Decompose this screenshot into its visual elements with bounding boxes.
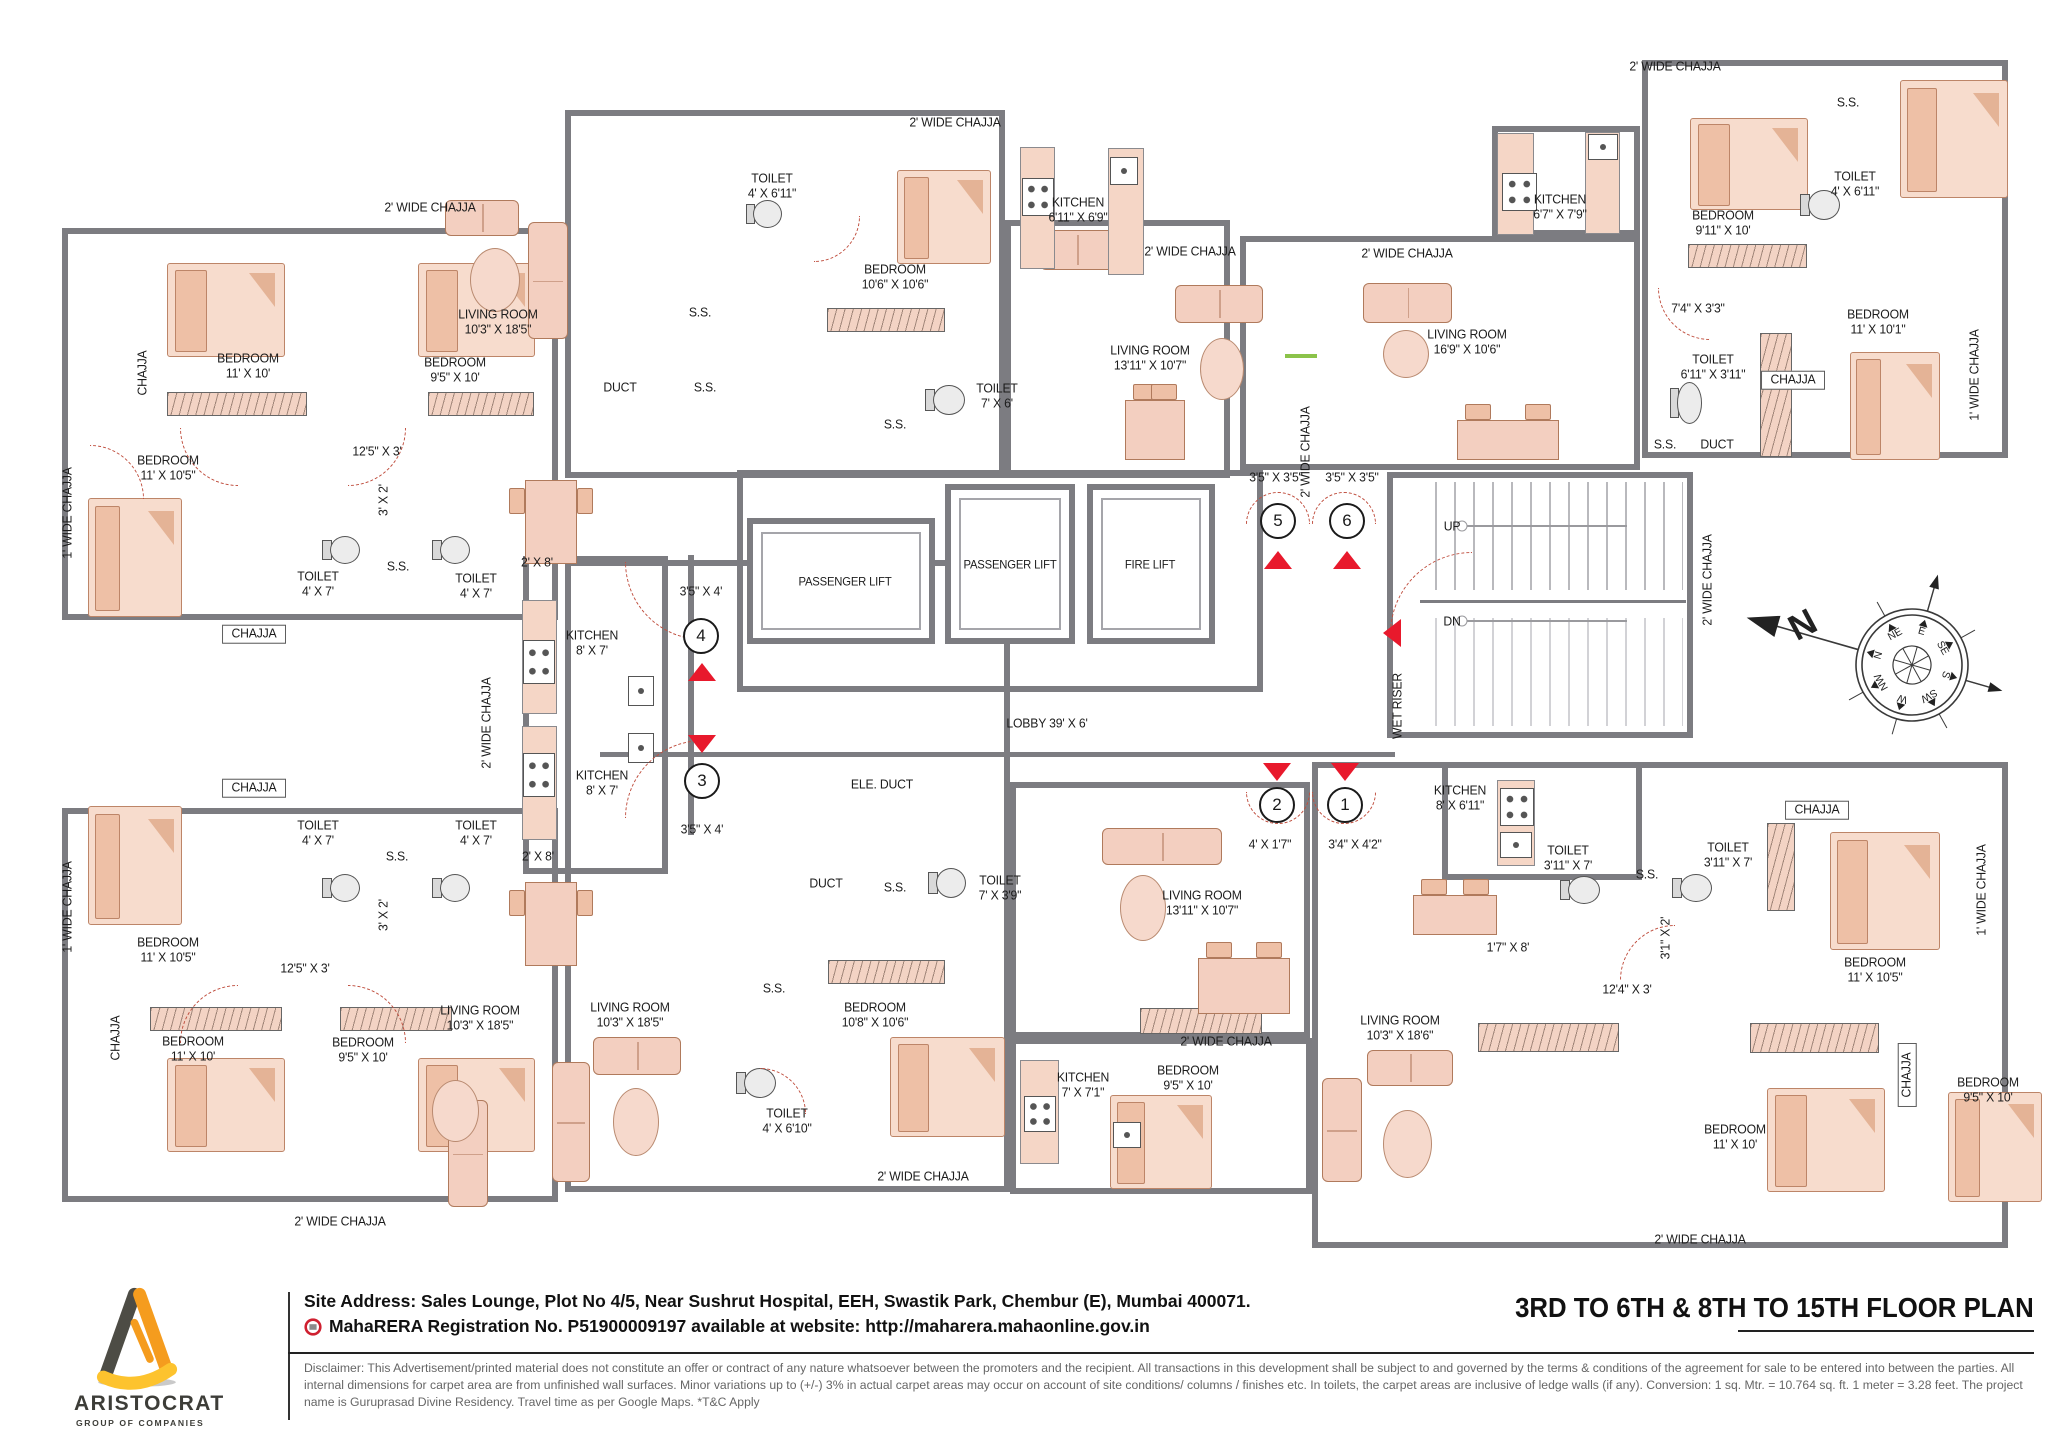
label-dimensions: 11' X 10'5" (137, 950, 199, 965)
label-text: S.S. (763, 981, 785, 996)
bed-symbol (88, 498, 182, 617)
label-text: 2' WIDE CHAJJA (877, 1169, 968, 1184)
label-dimensions: 9'5" X 10' (424, 370, 486, 385)
room-label: BEDROOM11' X 10'5" (1844, 955, 1906, 984)
dimension-label: LOBBY 39' X 6' (1006, 717, 1087, 732)
table-oval-symbol (470, 248, 520, 312)
room-label: BEDROOM11' X 10' (162, 1034, 224, 1063)
label-text: S.S. (689, 305, 711, 320)
label-text: 3'5" X 3'5" (1249, 470, 1302, 485)
svg-text:NE: NE (1886, 626, 1905, 644)
room-label: LIVING ROOM13'11" X 10'7" (1110, 343, 1189, 372)
wardrobe-symbol (1478, 1023, 1619, 1052)
label-text: LIVING ROOM (1360, 1012, 1439, 1027)
bed-symbol (1830, 832, 1940, 950)
label-dimensions: 10'3" X 18'5" (440, 1018, 519, 1033)
stair-run-line (1462, 620, 1627, 622)
label-text: 3'5" X 4' (681, 822, 724, 837)
chair-symbol (1525, 404, 1551, 420)
dimension-label: 2' X 8' (522, 850, 554, 865)
table-oval-symbol (613, 1088, 659, 1156)
label-text: DUCT (1700, 437, 1733, 452)
maharera-icon (304, 1318, 322, 1336)
toilet-wc-symbol (322, 536, 358, 562)
dimension-label: ELE. DUCT (851, 778, 913, 793)
stove-symbol (523, 753, 555, 797)
label-dimensions: 3'11" X 7' (1704, 855, 1752, 870)
label-text: 2' WIDE CHAJJA (479, 677, 494, 768)
label-text: TOILET (976, 380, 1017, 395)
stair-run-line (1462, 525, 1627, 527)
label-text: CHAJJA (231, 780, 276, 795)
stair-treads (1435, 482, 1683, 590)
label-dimensions: 6'11" X 3'11" (1681, 367, 1746, 382)
sofa-seam (1077, 235, 1079, 265)
sink-symbol (1500, 832, 1532, 858)
bed-symbol (167, 1058, 285, 1152)
label-text: 2' WIDE CHAJJA (294, 1214, 385, 1229)
toilet-wc-symbol (925, 385, 963, 413)
label-dimensions: 9'5" X 10' (1957, 1090, 2019, 1105)
toilet-wc-symbol (1560, 876, 1598, 902)
label-text: 1'7" X 8' (1487, 940, 1530, 955)
floor-plan-page: 2' WIDE CHAJJABEDROOM11' X 10'BEDROOM9'5… (0, 0, 2048, 1448)
stove-symbol (523, 640, 555, 684)
wall-segment (1442, 762, 1642, 880)
svg-text:SW: SW (1919, 686, 1940, 705)
label-dimensions: 8' X 7' (566, 643, 618, 658)
sofa-seam (637, 1042, 639, 1071)
page-title: 3RD TO 6TH & 8TH TO 15TH FLOOR PLAN (1515, 1292, 2034, 1324)
label-dimensions: 10'3" X 18'5" (590, 1015, 669, 1030)
dimension-label: 3'5" X 3'5" (1249, 471, 1302, 486)
room-label: TOILET4' X 6'11" (748, 171, 796, 200)
dimension-label: 3'5" X 3'5" (1325, 471, 1378, 486)
label-text: BEDROOM (1957, 1074, 2019, 1089)
sink-drain (638, 745, 644, 751)
sofa-seam (453, 1154, 483, 1156)
label-text: BEDROOM (864, 261, 926, 276)
label-text: CHAJJA (1899, 1052, 1914, 1097)
wardrobe-symbol (1767, 823, 1795, 911)
toilet-wc-symbol (432, 536, 468, 562)
bed-symbol (1690, 118, 1808, 210)
dimension-label: 4' X 1'7" (1249, 838, 1292, 853)
wardrobe-symbol (828, 960, 945, 984)
label-dimensions: 8' X 6'11" (1434, 798, 1486, 813)
label-text: PASSENGER LIFT (798, 574, 891, 588)
flat-number-badge: 2 (1259, 787, 1295, 823)
label-text: CHAJJA (1794, 802, 1839, 817)
room-label: TOILET3'11" X 7' (1544, 843, 1592, 872)
label-text: LIVING ROOM (590, 999, 669, 1014)
label-dimensions: 4' X 6'10" (762, 1121, 811, 1136)
room-label: LIVING ROOM10'3" X 18'5" (458, 307, 537, 336)
label-text: S.S. (694, 380, 716, 395)
chair-symbol (1463, 879, 1489, 895)
entry-arrow-icon (688, 663, 716, 681)
dimension-label: 2' WIDE CHAJJA (1654, 1233, 1745, 1248)
room-label: BEDROOM9'11" X 10' (1692, 208, 1754, 237)
sofa-seam (1408, 288, 1410, 318)
label-text: BEDROOM (844, 999, 906, 1014)
svg-text:NW: NW (1872, 671, 1891, 692)
dimension-label: DUCT (1700, 438, 1733, 453)
stove-symbol (1024, 1096, 1056, 1132)
label-dimensions: 8' X 7' (576, 783, 628, 798)
dining-table-symbol (1125, 400, 1185, 460)
label-dimensions: 9'11" X 10' (1692, 223, 1754, 238)
label-text: TOILET (455, 570, 496, 585)
entry-arrow-icon (688, 735, 716, 753)
label-dimensions: 11' X 10' (162, 1049, 224, 1064)
dimension-label: DUCT (809, 877, 842, 892)
flat-number-badge: 5 (1260, 503, 1296, 539)
label-text: 2' WIDE CHAJJA (1361, 246, 1452, 261)
room-label: BEDROOM10'8" X 10'6" (842, 1000, 909, 1029)
label-dimensions: 7' X 7'1" (1057, 1085, 1109, 1100)
label-text: KITCHEN (566, 627, 618, 642)
label-text: S.S. (884, 417, 906, 432)
dimension-label: 12'5" X 3' (352, 445, 401, 460)
label-dimensions: 11' X 10'5" (137, 468, 199, 483)
sofa-symbol (1175, 285, 1263, 323)
room-label: KITCHEN7' X 7'1" (1057, 1070, 1109, 1099)
flat-number-badge: 3 (684, 763, 720, 799)
label-text: BEDROOM (1692, 207, 1754, 222)
entry-arrow-icon (1331, 763, 1359, 781)
table-oval-symbol (1200, 338, 1244, 400)
toilet-wc-symbol (432, 874, 468, 900)
bed-symbol (1850, 352, 1940, 460)
logo-name: ARISTOCRAT (74, 1392, 225, 1416)
label-text: TOILET (1692, 351, 1733, 366)
label-dimensions: 6'7" X 7'9" (1533, 207, 1586, 222)
chair-symbol (1151, 384, 1177, 400)
label-text: BEDROOM (1704, 1121, 1766, 1136)
label-dimensions: 13'11" X 10'7" (1162, 903, 1241, 918)
dimension-label: CHAJJA (136, 350, 151, 395)
label-text: ELE. DUCT (851, 777, 913, 792)
label-dimensions: 10'3" X 18'5" (458, 322, 537, 337)
label-text: 3'4" X 4'2" (1328, 837, 1381, 852)
label-text: 2' WIDE CHAJJA (384, 200, 475, 215)
room-label: BEDROOM9'5" X 10' (1957, 1075, 2019, 1104)
dimension-label: CHAJJA (1898, 1043, 1917, 1107)
svg-text:W: W (1896, 691, 1909, 705)
room-label: BEDROOM11' X 10'1" (1847, 307, 1909, 336)
label-text: 2' X 8' (521, 555, 553, 570)
dimension-label: 3' X 2' (377, 899, 392, 931)
room-label: BEDROOM11' X 10' (217, 351, 279, 380)
sink-drain (1513, 842, 1519, 848)
toilet-wc-symbol (746, 200, 780, 226)
label-text: TOILET (766, 1105, 807, 1120)
stair-treads (1435, 618, 1683, 726)
bed-symbol (890, 1037, 1005, 1137)
sink-drain (1124, 1132, 1130, 1138)
label-text: S.S. (884, 880, 906, 895)
label-text: 2' WIDE CHAJJA (1654, 1232, 1745, 1247)
wall-segment (600, 752, 1395, 757)
label-text: 12'5" X 3' (280, 961, 329, 976)
utility-accent (1285, 354, 1317, 358)
label-text: BEDROOM (137, 452, 199, 467)
label-dimensions: 13'11" X 10'7" (1110, 358, 1189, 373)
label-dimensions: 11' X 10'1" (1847, 322, 1909, 337)
label-text: KITCHEN (1057, 1069, 1109, 1084)
label-text: S.S. (1654, 437, 1676, 452)
chair-symbol (577, 890, 593, 916)
dimension-label: 1'7" X 8' (1487, 941, 1530, 956)
label-text: LIVING ROOM (1162, 887, 1241, 902)
chair-symbol (577, 488, 593, 514)
label-text: TOILET (297, 568, 338, 583)
sink-drain (638, 688, 644, 694)
label-text: PASSENGER LIFT (963, 557, 1056, 571)
dimension-label: CHAJJA (222, 779, 286, 798)
dimension-label: S.S. (884, 418, 906, 433)
room-label: TOILET4' X 6'10" (762, 1106, 811, 1135)
label-text: UP (1444, 519, 1461, 534)
chair-symbol (509, 488, 525, 514)
label-text: 12'5" X 3' (352, 444, 401, 459)
label-text: BEDROOM (1157, 1062, 1219, 1077)
label-text: TOILET (751, 170, 792, 185)
wall-segment (565, 110, 1005, 478)
rera-line-row: MahaRERA Registration No. P51900009197 a… (304, 1316, 1150, 1337)
dimension-label: 3'5" X 4' (680, 585, 723, 600)
room-label: BEDROOM10'6" X 10'6" (862, 262, 929, 291)
label-dimensions: 3'11" X 7' (1544, 858, 1592, 873)
label-text: 7'4" X 3'3" (1671, 301, 1724, 316)
dimension-label: 2' WIDE CHAJJA (1180, 1035, 1271, 1050)
label-text: 2' WIDE CHAJJA (1144, 244, 1235, 259)
room-label: TOILET4' X 6'11" (1831, 169, 1879, 198)
label-text: KITCHEN (1434, 782, 1486, 797)
flat-number-badge: 4 (683, 618, 719, 654)
table-oval-symbol (1383, 330, 1429, 378)
dimension-label: 1' WIDE CHAJJA (61, 467, 76, 558)
svg-text:E: E (1917, 625, 1927, 638)
dimension-label: 2' WIDE CHAJJA (1144, 245, 1235, 260)
dimension-label: 2' WIDE CHAJJA (1361, 247, 1452, 262)
stove-symbol (1500, 788, 1534, 826)
label-text: 3'5" X 4' (680, 584, 723, 599)
room-label: KITCHEN8' X 7' (576, 768, 628, 797)
dimension-label: 3'1" X 2' (1659, 917, 1674, 960)
sofa-symbol (552, 1062, 590, 1182)
dimension-label: 2' WIDE CHAJJA (384, 201, 475, 216)
sofa-symbol (1102, 828, 1222, 865)
dining-table-symbol (525, 480, 577, 564)
sofa-symbol (1363, 283, 1452, 323)
dimension-label: DUCT (603, 381, 636, 396)
compass-rose-icon: NNEESESSWWNWN (1700, 540, 2048, 790)
label-text: S.S. (386, 849, 408, 864)
dimension-label: 1' WIDE CHAJJA (61, 861, 76, 952)
room-label: KITCHEN6'11" X 6'9" (1048, 195, 1107, 224)
label-text: TOILET (297, 817, 338, 832)
label-dimensions: 7' X 6' (976, 396, 1017, 411)
label-text: S.S. (387, 559, 409, 574)
label-text: 3'5" X 3'5" (1325, 470, 1378, 485)
dimension-label: 3'5" X 4' (681, 823, 724, 838)
label-text: DUCT (603, 380, 636, 395)
label-dimensions: 10'6" X 10'6" (862, 277, 929, 292)
rera-line: MahaRERA Registration No. P51900009197 a… (329, 1316, 1150, 1337)
label-text: CHAJJA (1770, 372, 1815, 387)
disclaimer-text: Disclaimer: This Advertisement/printed m… (304, 1360, 2034, 1410)
sofa-seam (1219, 290, 1221, 319)
room-label: BEDROOM11' X 10' (1704, 1122, 1766, 1151)
sink-symbol (1110, 157, 1138, 185)
room-label: TOILET4' X 7' (455, 571, 496, 600)
label-text: TOILET (455, 817, 496, 832)
label-dimensions: 4' X 7' (297, 833, 338, 848)
sofa-seam (1162, 833, 1164, 861)
label-text: 3' X 2' (376, 899, 391, 931)
label-text: TOILET (1547, 842, 1588, 857)
label-dimensions: 4' X 7' (455, 833, 496, 848)
label-text: LIVING ROOM (458, 306, 537, 321)
dimension-label: 2' WIDE CHAJJA (909, 116, 1000, 131)
label-text: BEDROOM (1847, 306, 1909, 321)
dining-table-symbol (1457, 420, 1559, 460)
label-dimensions: 4' X 6'11" (1831, 184, 1879, 199)
label-text: LIVING ROOM (440, 1002, 519, 1017)
sofa-seam (557, 1122, 586, 1124)
label-text: KITCHEN (1052, 194, 1104, 209)
sink-symbol (628, 733, 654, 763)
bed-symbol (1948, 1092, 2042, 1202)
dimension-label: S.S. (1837, 96, 1859, 111)
dimension-label: 7'4" X 3'3" (1671, 302, 1724, 317)
label-dimensions: 11' X 10' (217, 366, 279, 381)
sofa-symbol (1322, 1078, 1362, 1182)
sofa-symbol (593, 1037, 681, 1075)
label-text: 1' WIDE CHAJJA (60, 861, 75, 952)
chair-symbol (1421, 879, 1447, 895)
label-text: DN (1443, 614, 1460, 629)
label-text: 1' WIDE CHAJJA (1974, 844, 1989, 935)
toilet-wc-symbol (928, 868, 964, 896)
dimension-label: S.S. (386, 850, 408, 865)
dimension-label: UP (1444, 520, 1461, 535)
label-dimensions: 10'3" X 18'6" (1360, 1028, 1439, 1043)
svg-text:N: N (1872, 650, 1886, 661)
wardrobe-symbol (827, 308, 945, 332)
room-label: KITCHEN8' X 7' (566, 628, 618, 657)
room-label: LIVING ROOM10'3" X 18'5" (590, 1000, 669, 1029)
label-text: 2' X 8' (522, 849, 554, 864)
footer-rule (288, 1352, 2034, 1354)
dimension-label: 2' X 8' (521, 556, 553, 571)
room-label: TOILET6'11" X 3'11" (1681, 352, 1746, 381)
label-text: LIVING ROOM (1427, 326, 1506, 341)
label-text: BEDROOM (1844, 954, 1906, 969)
entry-arrow-icon (1333, 551, 1361, 569)
room-label: TOILET3'11" X 7' (1704, 840, 1752, 869)
dimension-label: S.S. (1654, 438, 1676, 453)
bed-symbol (897, 170, 991, 264)
room-label: TOILET4' X 7' (297, 569, 338, 598)
room-label: BEDROOM11' X 10'5" (137, 935, 199, 964)
label-text: 1' WIDE CHAJJA (60, 467, 75, 558)
sink-symbol (1113, 1122, 1141, 1148)
sofa-seam (482, 204, 484, 231)
room-label: LIVING ROOM16'9" X 10'6" (1427, 327, 1506, 356)
dimension-label: 12'5" X 3' (280, 962, 329, 977)
dimension-label: PASSENGER LIFT (798, 575, 891, 588)
room-label: BEDROOM9'5" X 10' (332, 1035, 394, 1064)
label-text: 2' WIDE CHAJJA (1629, 59, 1720, 74)
label-text: S.S. (1636, 867, 1658, 882)
entry-arrow-icon (1383, 619, 1401, 647)
label-text: CHAJJA (231, 626, 276, 641)
label-text: KITCHEN (576, 767, 628, 782)
label-text: S.S. (1837, 95, 1859, 110)
label-text: BEDROOM (162, 1033, 224, 1048)
dimension-label: 2' WIDE CHAJJA (480, 677, 495, 768)
table-oval-symbol (1383, 1110, 1432, 1178)
label-dimensions: 16'9" X 10'6" (1427, 342, 1506, 357)
chair-symbol (1206, 942, 1232, 958)
dimension-label: 1' WIDE CHAJJA (1975, 844, 1990, 935)
sofa-seam (1410, 1054, 1412, 1081)
label-text: KITCHEN (1534, 191, 1586, 206)
chair-symbol (1465, 404, 1491, 420)
table-oval-symbol (1120, 875, 1166, 941)
wardrobe-symbol (428, 392, 534, 416)
sofa-seam (533, 281, 563, 283)
room-label: TOILET7' X 6' (976, 381, 1017, 410)
label-text: TOILET (1707, 839, 1748, 854)
room-label: BEDROOM9'5" X 10' (424, 355, 486, 384)
room-label: TOILET7' X 3'9" (979, 873, 1022, 902)
label-text: WET RISER (1390, 673, 1405, 739)
room-label: KITCHEN6'7" X 7'9" (1533, 192, 1586, 221)
room-label: LIVING ROOM10'3" X 18'6" (1360, 1013, 1439, 1042)
stove-symbol (1502, 173, 1537, 211)
dimension-label: 2' WIDE CHAJJA (1629, 60, 1720, 75)
dimension-label: PASSENGER LIFT (963, 558, 1056, 571)
dimension-label: S.S. (689, 306, 711, 321)
room-label: BEDROOM11' X 10'5" (137, 453, 199, 482)
sink-drain (1600, 144, 1606, 150)
label-dimensions: 11' X 10' (1704, 1137, 1766, 1152)
room-label: TOILET4' X 7' (297, 818, 338, 847)
label-text: TOILET (1834, 168, 1875, 183)
chair-symbol (509, 890, 525, 916)
toilet-wc-symbol (1670, 382, 1700, 422)
dimension-label: S.S. (763, 982, 785, 997)
sofa-seam (1327, 1130, 1357, 1132)
dimension-label: 1' WIDE CHAJJA (1968, 329, 1983, 420)
dimension-label: 12'4" X 3' (1602, 983, 1651, 998)
label-text: 1' WIDE CHAJJA (1967, 329, 1982, 420)
label-dimensions: 9'5" X 10' (1157, 1078, 1219, 1093)
title-underline (1738, 1330, 2034, 1332)
chair-symbol (1256, 942, 1282, 958)
dimension-label: CHAJJA (1785, 801, 1849, 820)
entry-arrow-icon (1264, 551, 1292, 569)
label-text: 4' X 1'7" (1249, 837, 1292, 852)
label-text: 2' WIDE CHAJJA (909, 115, 1000, 130)
dimension-label: S.S. (694, 381, 716, 396)
dimension-label: 2' WIDE CHAJJA (294, 1215, 385, 1230)
dining-table-symbol (525, 882, 577, 966)
